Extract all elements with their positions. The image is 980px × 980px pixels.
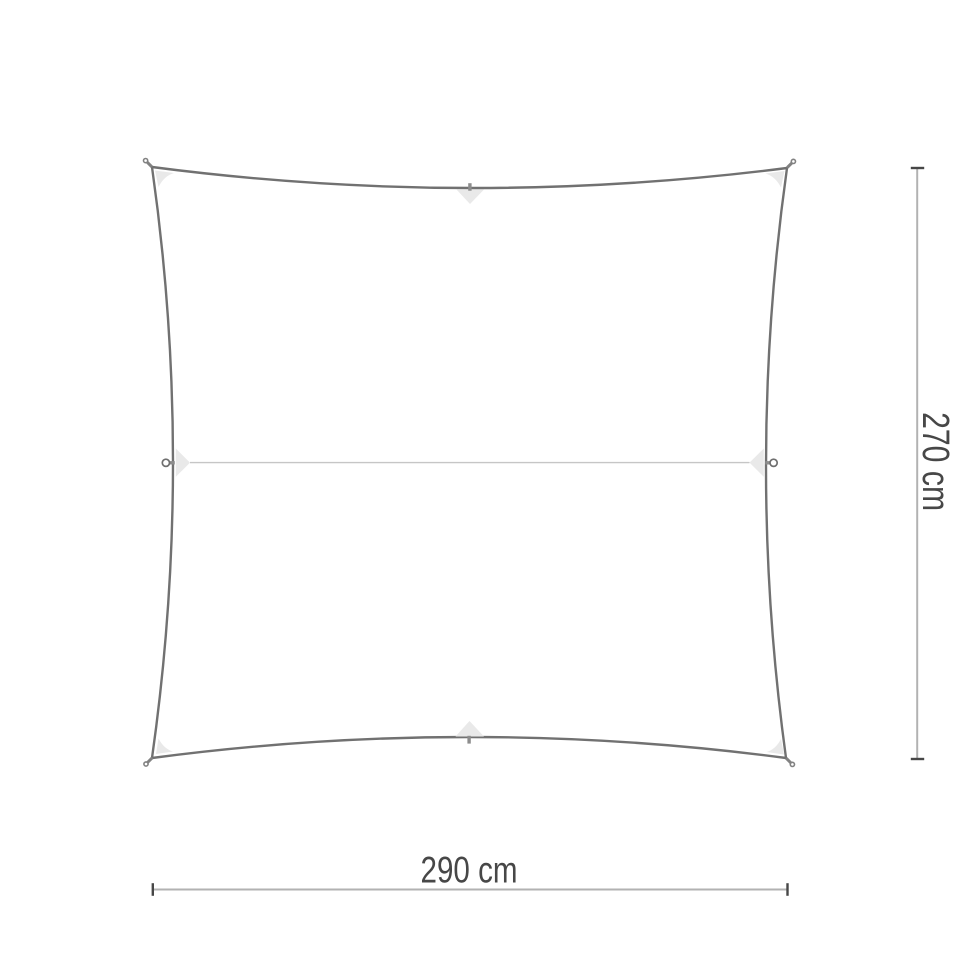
svg-text:270 cm: 270 cm xyxy=(914,412,956,511)
svg-text:290 cm: 290 cm xyxy=(421,849,518,891)
